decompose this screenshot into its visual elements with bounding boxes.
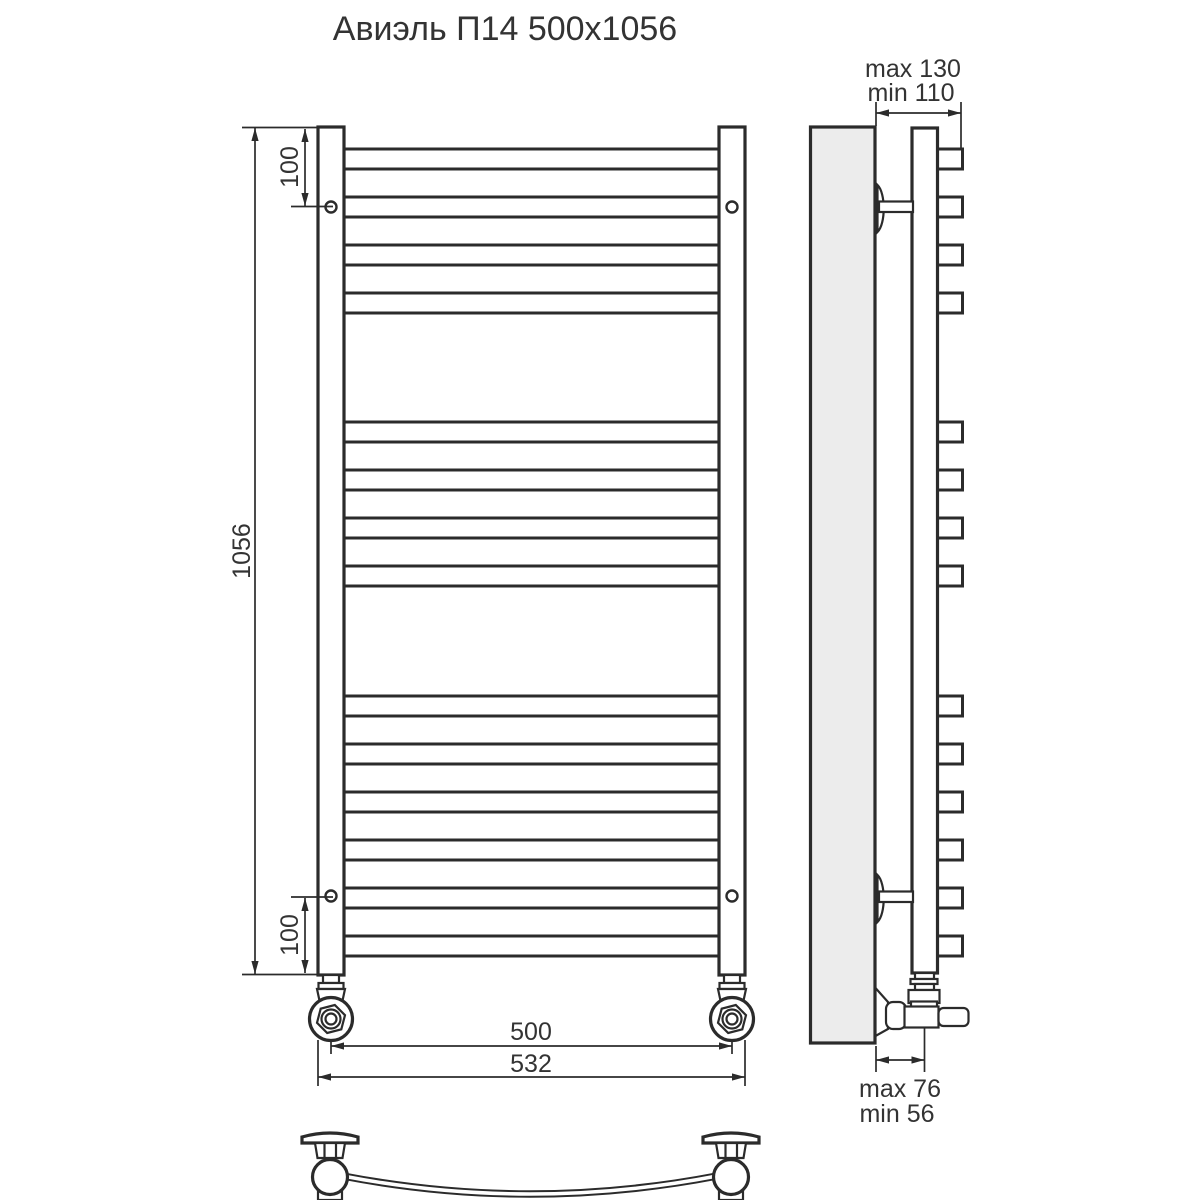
side-rail — [912, 128, 938, 973]
dimension-arrowhead — [301, 129, 308, 142]
rung-stub — [938, 293, 963, 313]
dimension-width-532: 532 — [318, 1040, 745, 1086]
technical-drawing-page: Авиэль П14 500x1056 1056 100 100 — [0, 0, 1200, 1200]
rung-stub — [938, 936, 963, 956]
dimension-arrowhead — [318, 1073, 331, 1080]
dimension-arrowhead — [912, 1056, 925, 1063]
dimension-width-500: 500 — [331, 1018, 732, 1054]
rung — [344, 744, 719, 764]
wall — [811, 127, 876, 1043]
wall-bracket-bottom — [878, 875, 914, 922]
dimension-height-1056: 1056 — [228, 128, 317, 975]
rung — [344, 696, 719, 716]
rung — [344, 518, 719, 538]
towel-radiator-drawing: Авиэль П14 500x1056 1056 100 100 — [0, 0, 1200, 1200]
dimension-arrowhead — [301, 193, 308, 206]
rung-stub — [938, 197, 963, 217]
rung-stub — [938, 840, 963, 860]
mounting-hole-bottom-right — [727, 891, 738, 902]
rung — [344, 245, 719, 265]
rung — [344, 936, 719, 956]
side-valve — [876, 973, 969, 1072]
dimension-arrowhead — [301, 960, 308, 973]
rung — [344, 293, 719, 313]
dim-label-pipe-min: min 56 — [859, 1100, 934, 1128]
dim-label-top-offset: 100 — [276, 146, 304, 188]
rung — [344, 197, 719, 217]
front-view: 1056 100 100 500 532 — [228, 127, 754, 1086]
dimension-arrowhead — [251, 961, 258, 974]
mounting-hole-bottom-left — [326, 891, 337, 902]
rung — [344, 422, 719, 442]
connection-detail — [302, 1133, 759, 1200]
dimension-arrowhead — [876, 1056, 889, 1063]
dim-label-pipe-max: max 76 — [859, 1075, 941, 1103]
rung — [344, 566, 719, 586]
right-rail — [719, 127, 745, 975]
rung-stub — [938, 696, 963, 716]
rung-stub — [938, 470, 963, 490]
drawing-title: Авиэль П14 500x1056 — [333, 10, 677, 48]
rung — [344, 149, 719, 169]
rung — [344, 888, 719, 908]
dim-label-bottom-offset: 100 — [276, 914, 304, 956]
left-rail — [318, 127, 344, 975]
side-view: max 130 min 110 max 76 min 56 — [811, 55, 969, 1128]
rung-stub — [938, 518, 963, 538]
front-rungs — [344, 149, 719, 956]
dimension-arrowhead — [331, 1042, 344, 1049]
dim-label-width-overall: 532 — [510, 1050, 552, 1078]
dimension-arrowhead — [301, 898, 308, 911]
valve-fitting-left — [310, 975, 353, 1041]
dim-label-depth-min: min 110 — [867, 79, 954, 107]
rung — [344, 470, 719, 490]
detail-valve-right — [703, 1133, 759, 1200]
dim-label-width-centers: 500 — [510, 1018, 552, 1046]
rung — [344, 792, 719, 812]
detail-valve-left — [302, 1133, 358, 1200]
rung — [344, 840, 719, 860]
mounting-hole-top-right — [727, 202, 738, 213]
dimension-arrowhead — [732, 1073, 745, 1080]
rung-stub — [938, 245, 963, 265]
dim-label-height: 1056 — [228, 523, 256, 579]
rung-stub — [938, 744, 963, 764]
rung-stub — [938, 888, 963, 908]
side-rung-stubs — [938, 149, 963, 956]
wall-bracket-top — [878, 185, 914, 232]
valve-fitting-right — [711, 975, 754, 1041]
rung-stub — [938, 149, 963, 169]
dimension-arrowhead — [948, 109, 961, 116]
dimension-arrowhead — [876, 109, 889, 116]
rung-stub — [938, 792, 963, 812]
dimension-arrowhead — [251, 128, 258, 141]
dimension-depth-bottom: max 76 min 56 — [859, 1046, 941, 1128]
rung-stub — [938, 566, 963, 586]
dimension-arrowhead — [719, 1042, 732, 1049]
rung-stub — [938, 422, 963, 442]
